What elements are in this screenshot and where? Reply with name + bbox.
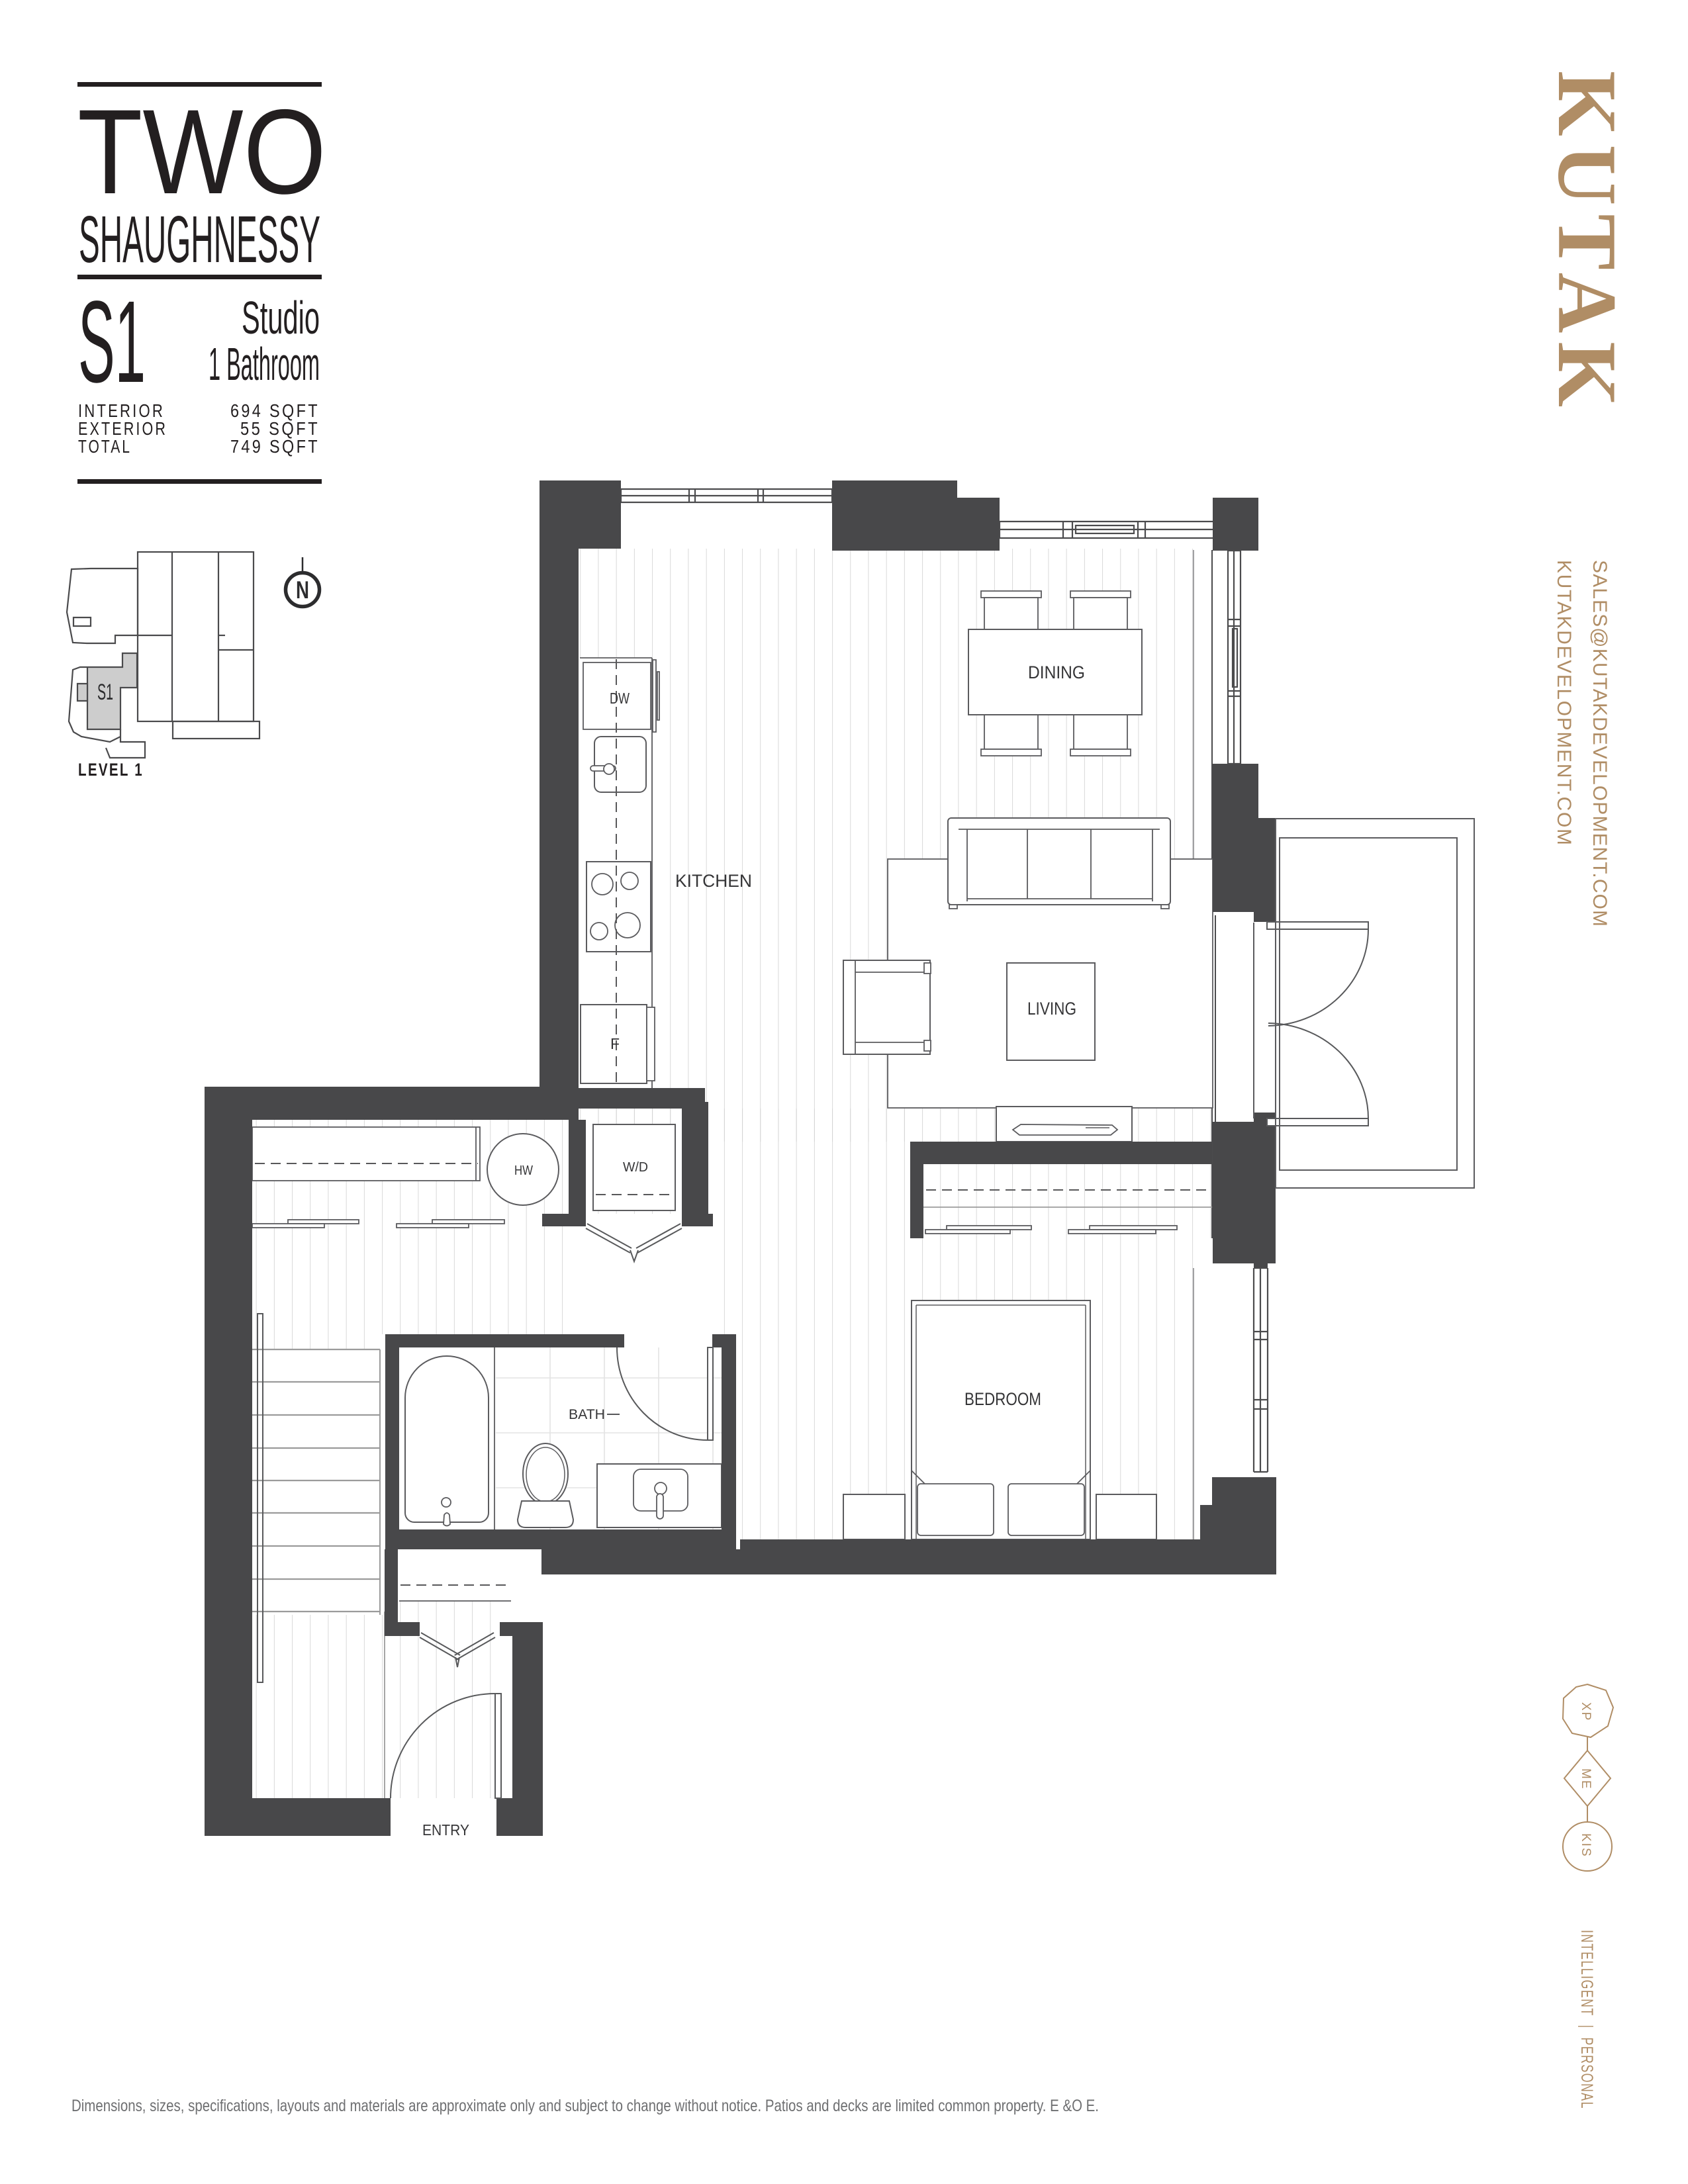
svg-text:749 SQFT: 749 SQFT xyxy=(230,436,320,457)
svg-text:F: F xyxy=(610,1035,620,1052)
svg-text:XP: XP xyxy=(1579,1702,1593,1721)
svg-text:SHAUGHNESSY: SHAUGHNESSY xyxy=(79,203,320,277)
svg-text:BATH: BATH xyxy=(569,1407,605,1422)
svg-text:N: N xyxy=(296,576,309,604)
svg-text:KUTAK: KUTAK xyxy=(1540,71,1633,412)
svg-text:Dimensions, sizes, specificati: Dimensions, sizes, specifications, layou… xyxy=(71,2097,1099,2115)
svg-text:HW: HW xyxy=(514,1163,533,1178)
svg-text:BEDROOM: BEDROOM xyxy=(964,1389,1041,1409)
svg-text:INTELLIGENT | PERSONAL: INTELLIGENT | PERSONAL xyxy=(1577,1930,1596,2109)
svg-text:KUTAKDEVELOPMENT.COM: KUTAKDEVELOPMENT.COM xyxy=(1553,560,1575,849)
svg-text:ENTRY: ENTRY xyxy=(422,1821,469,1839)
svg-text:Studio: Studio xyxy=(242,292,320,343)
svg-text:W/D: W/D xyxy=(623,1160,648,1175)
svg-text:KIS: KIS xyxy=(1579,1833,1593,1858)
svg-text:LIVING: LIVING xyxy=(1027,999,1076,1019)
svg-text:S1: S1 xyxy=(97,680,113,705)
svg-text:SALES@KUTAKDEVELOPMENT.COM: SALES@KUTAKDEVELOPMENT.COM xyxy=(1589,560,1611,931)
svg-text:DW: DW xyxy=(610,690,630,707)
svg-text:S1: S1 xyxy=(78,277,146,407)
svg-text:ME: ME xyxy=(1579,1768,1593,1790)
svg-text:DINING: DINING xyxy=(1028,662,1085,682)
svg-text:1 Bathroom: 1 Bathroom xyxy=(209,338,320,390)
svg-text:TWO: TWO xyxy=(77,84,326,219)
svg-text:LEVEL 1: LEVEL 1 xyxy=(78,760,144,780)
svg-text:TOTAL: TOTAL xyxy=(78,436,132,457)
svg-text:KITCHEN: KITCHEN xyxy=(675,871,752,891)
